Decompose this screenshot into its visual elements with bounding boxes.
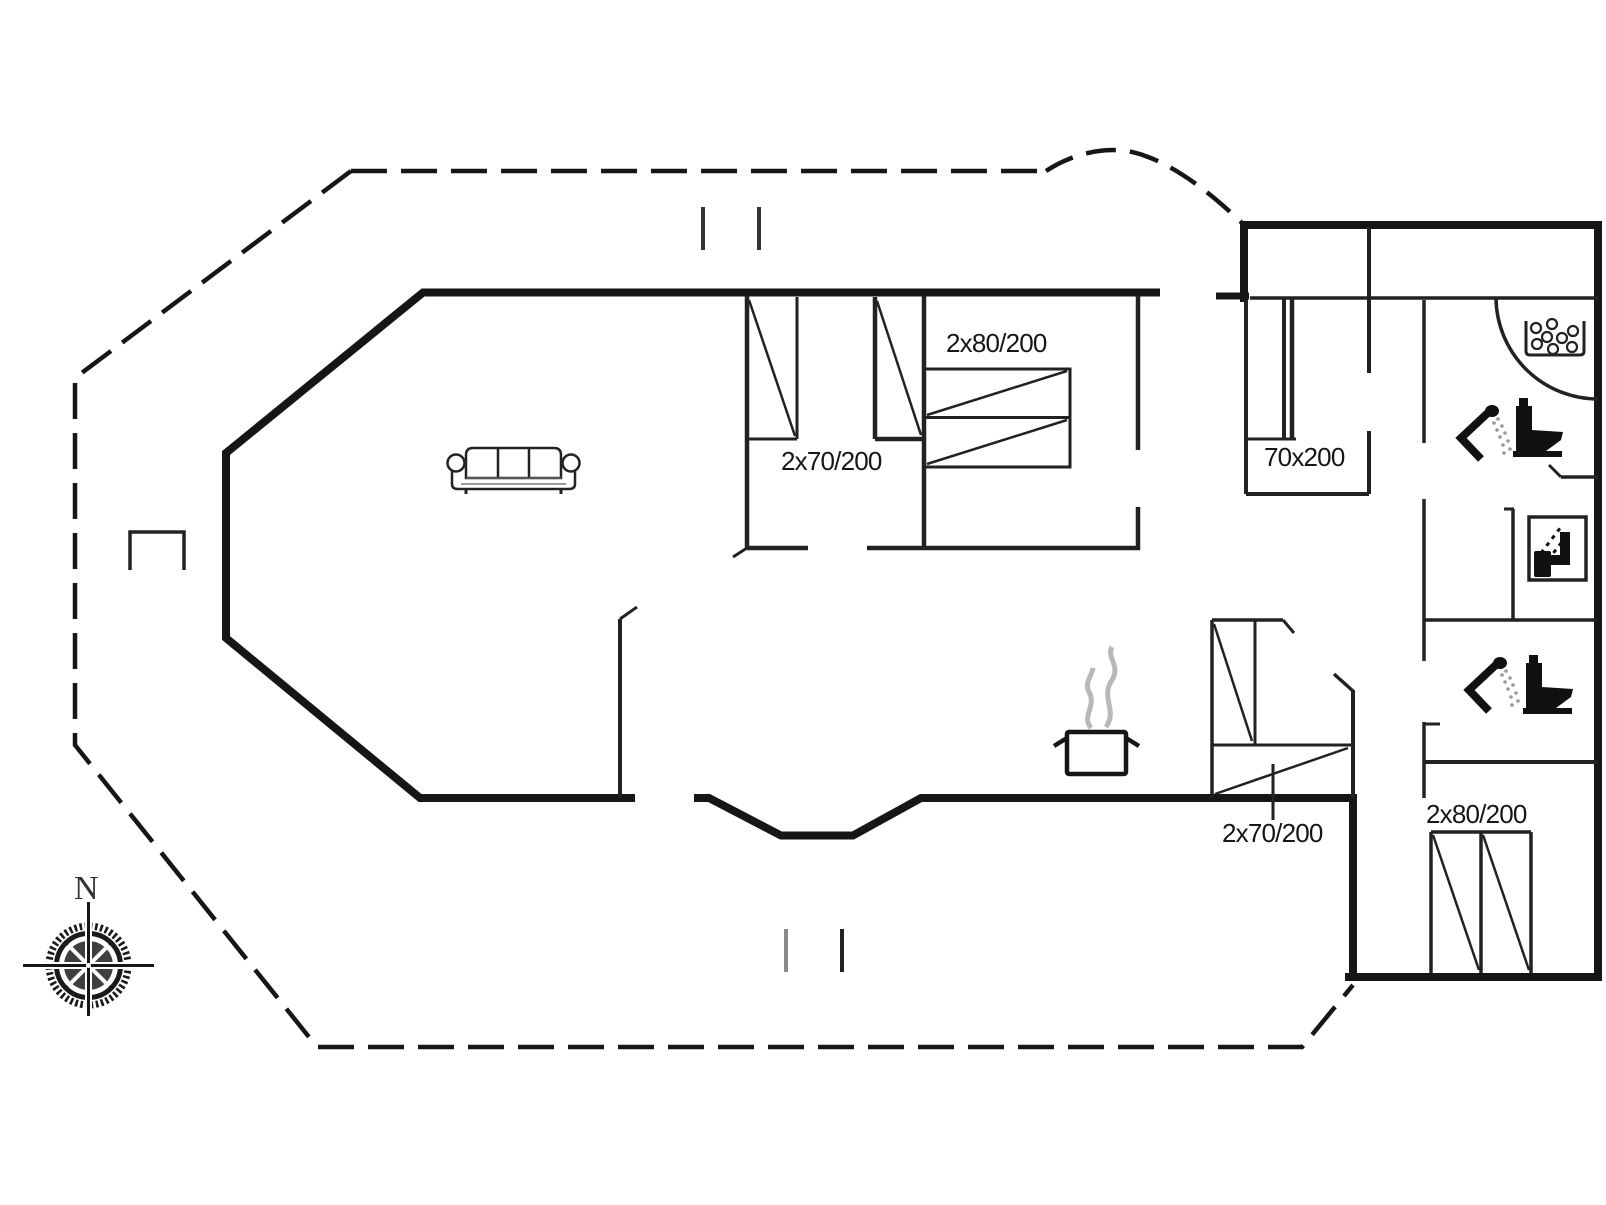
svg-text:N: N [74, 870, 99, 907]
svg-text:2x80/200: 2x80/200 [1426, 799, 1527, 829]
svg-text:70x200: 70x200 [1264, 442, 1345, 472]
svg-text:2x70/200: 2x70/200 [1222, 818, 1323, 848]
svg-text:2x70/200: 2x70/200 [781, 446, 882, 476]
svg-text:2x80/200: 2x80/200 [946, 328, 1047, 358]
